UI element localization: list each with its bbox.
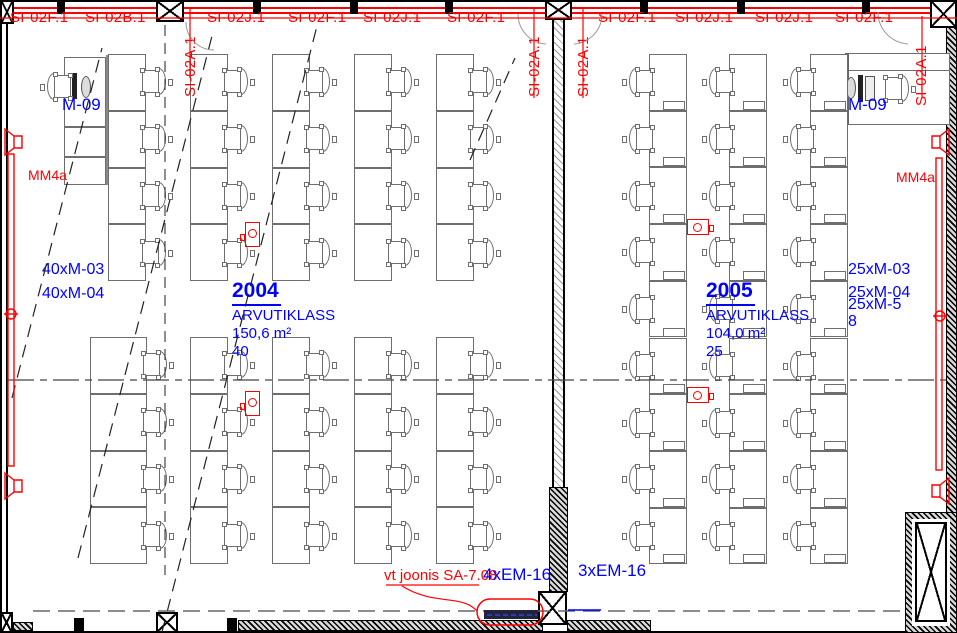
pc-tower	[663, 554, 685, 563]
chair	[781, 67, 815, 97]
chair	[142, 407, 176, 437]
chair	[469, 350, 503, 380]
chair	[700, 521, 734, 551]
si-duct-label: SI-02J.1	[675, 9, 733, 26]
chair	[700, 408, 734, 438]
chair	[781, 408, 815, 438]
bottom-wall-hatch-left	[238, 620, 543, 631]
pc-tower	[663, 328, 685, 337]
desk	[90, 451, 147, 508]
chair	[620, 124, 654, 154]
teacher-cabinet-2004-b	[64, 157, 106, 185]
floor-box	[687, 219, 709, 235]
desk	[90, 507, 147, 564]
left-wall-outer	[0, 0, 2, 633]
wall-label-mm4a-left: MM4a	[28, 167, 67, 183]
pc-tower	[824, 214, 846, 223]
si-duct-label: SI-02F.1	[10, 9, 68, 26]
si-duct-label: SI-02J.1	[207, 9, 265, 26]
equipment-label: 25xM-5	[848, 296, 901, 314]
valve-symbol-right	[935, 311, 945, 321]
pc-tower	[663, 157, 685, 166]
floor-box	[245, 391, 260, 416]
chair	[223, 464, 257, 494]
si-duct-label: SI-02A.1	[182, 15, 199, 97]
chair	[305, 181, 339, 211]
room-area: 150,6 m²	[232, 325, 372, 342]
room-number: 2005	[706, 279, 755, 306]
chair	[141, 181, 175, 211]
wall-label-mm4a-right: MM4a	[896, 169, 935, 185]
chair	[781, 464, 815, 494]
chair	[700, 67, 734, 97]
pc-tower	[743, 214, 765, 223]
si-duct-label: SI-02F.1	[598, 9, 656, 26]
floor-plan-canvas: M-09 M-09 2004 ARVUTIKLASS 150,6 m² 40 2…	[0, 0, 957, 633]
chair	[620, 521, 654, 551]
equipment-label: 8	[848, 313, 857, 331]
room-area: 104,0 m²	[706, 325, 846, 342]
pc-tower	[663, 271, 685, 280]
chair	[387, 67, 421, 97]
pc-tower	[824, 441, 846, 450]
bottom-label-3xem16: 3xEM-16	[578, 561, 646, 581]
pc-tower	[824, 384, 846, 393]
room-seat-count: 25	[706, 343, 846, 360]
chair	[305, 407, 339, 437]
pc-tower	[743, 441, 765, 450]
column-bottom-mid	[538, 591, 567, 625]
pc-tower	[743, 384, 765, 393]
chair	[305, 67, 339, 97]
chair	[141, 124, 175, 154]
si-duct-label: SI-02J.1	[755, 9, 813, 26]
teacher-desk-2005-divider	[845, 70, 950, 71]
pc-tower	[743, 554, 765, 563]
chair	[223, 67, 257, 97]
pc-tower	[743, 498, 765, 507]
pc-tower	[663, 214, 685, 223]
pc-tower	[663, 498, 685, 507]
room-info-2004: 2004 ARVUTIKLASS 150,6 m² 40	[232, 279, 372, 360]
chair	[387, 181, 421, 211]
pc-tower	[743, 157, 765, 166]
window-tick	[350, 1, 358, 14]
si-duct-label: SI-02F.1	[835, 9, 893, 26]
chair	[781, 181, 815, 211]
chair	[469, 521, 503, 551]
chair	[781, 521, 815, 551]
teacher-cabinet-2004-a	[64, 127, 106, 157]
chair	[305, 124, 339, 154]
chair	[387, 464, 421, 494]
room-name: ARVUTIKLASS	[232, 307, 372, 324]
chair	[142, 464, 176, 494]
chair	[620, 351, 654, 381]
si-duct-label: SI-02A.1	[526, 15, 543, 97]
desk	[90, 394, 147, 451]
chair	[305, 238, 339, 268]
column-top-a	[156, 0, 184, 22]
chair	[142, 521, 176, 551]
chair	[620, 237, 654, 267]
chair	[141, 238, 175, 268]
chair	[700, 181, 734, 211]
pc-tower	[824, 554, 846, 563]
pc-tower	[824, 157, 846, 166]
chair	[620, 408, 654, 438]
chair	[305, 464, 339, 494]
chair	[700, 464, 734, 494]
mid-wall-lower	[549, 487, 568, 592]
chair	[620, 67, 654, 97]
chair	[620, 294, 654, 324]
top-wall-line	[0, 0, 957, 2]
chair	[387, 521, 421, 551]
chair	[387, 407, 421, 437]
equipment-label: 40xM-03	[42, 261, 104, 279]
chair	[620, 464, 654, 494]
floor-duct	[484, 610, 538, 619]
chair	[781, 124, 815, 154]
pc-tower	[663, 384, 685, 393]
left-wall-inner	[6, 0, 8, 633]
mid-wall-core	[554, 18, 563, 488]
chair	[469, 238, 503, 268]
chair	[620, 181, 654, 211]
radiator-right	[936, 158, 942, 470]
teacher-desk-label-2005: M-09	[848, 95, 887, 115]
bottom-wall-stub-2	[227, 618, 237, 631]
bottom-wall-hatch-corner	[13, 622, 33, 631]
si-duct-label: SI-02B.1	[85, 9, 146, 26]
si-duct-label: SI-02A.1	[913, 24, 930, 106]
equipment-label: 40xM-04	[42, 285, 104, 303]
floor-box	[687, 387, 709, 403]
radiator-left	[8, 154, 14, 466]
chair	[141, 67, 175, 97]
si-duct-label: SI-02F.1	[447, 9, 505, 26]
bottom-wall-stub-1	[74, 618, 84, 631]
chair	[469, 67, 503, 97]
pc-tower	[743, 101, 765, 110]
room-name: ARVUTIKLASS	[706, 307, 846, 324]
chair	[223, 124, 257, 154]
floor-box	[245, 222, 260, 247]
si-duct-label: SI-02J.1	[363, 9, 421, 26]
chair	[469, 124, 503, 154]
pc-tower	[663, 101, 685, 110]
desk	[90, 337, 147, 394]
room-number: 2004	[232, 279, 281, 306]
shaft-duct	[915, 522, 947, 622]
chair	[387, 124, 421, 154]
chair	[469, 464, 503, 494]
chair	[387, 350, 421, 380]
column-top-mid	[545, 0, 572, 20]
bottom-note-red: vt joonis SA-7.08	[384, 567, 497, 584]
chair	[469, 407, 503, 437]
equipment-label: 25xM-03	[848, 261, 910, 279]
chair	[142, 350, 176, 380]
chair	[387, 238, 421, 268]
chair	[700, 124, 734, 154]
teacher-desk-label-2004: M-09	[62, 95, 101, 115]
pc-tower	[824, 498, 846, 507]
chair	[223, 521, 257, 551]
bottom-label-4xem16: 4xEM-16	[483, 565, 551, 585]
chair	[223, 181, 257, 211]
chair	[781, 237, 815, 267]
chair	[700, 237, 734, 267]
pc-tower	[663, 441, 685, 450]
si-duct-label: SI-02A.1	[575, 15, 592, 97]
column-bottom-left	[0, 612, 13, 633]
room-seat-count: 40	[232, 343, 372, 360]
si-duct-label: SI-02F.1	[288, 9, 346, 26]
chair	[305, 521, 339, 551]
column-top-right	[930, 0, 957, 28]
pc-tower	[824, 101, 846, 110]
chair	[469, 181, 503, 211]
mid-wall-right-line	[563, 18, 565, 488]
window-tick	[737, 1, 745, 14]
room-info-2005: 2005 ARVUTIKLASS 104,0 m² 25	[706, 279, 846, 360]
column-bottom-a	[156, 612, 178, 633]
bottom-wall-hatch-mid	[567, 620, 651, 631]
